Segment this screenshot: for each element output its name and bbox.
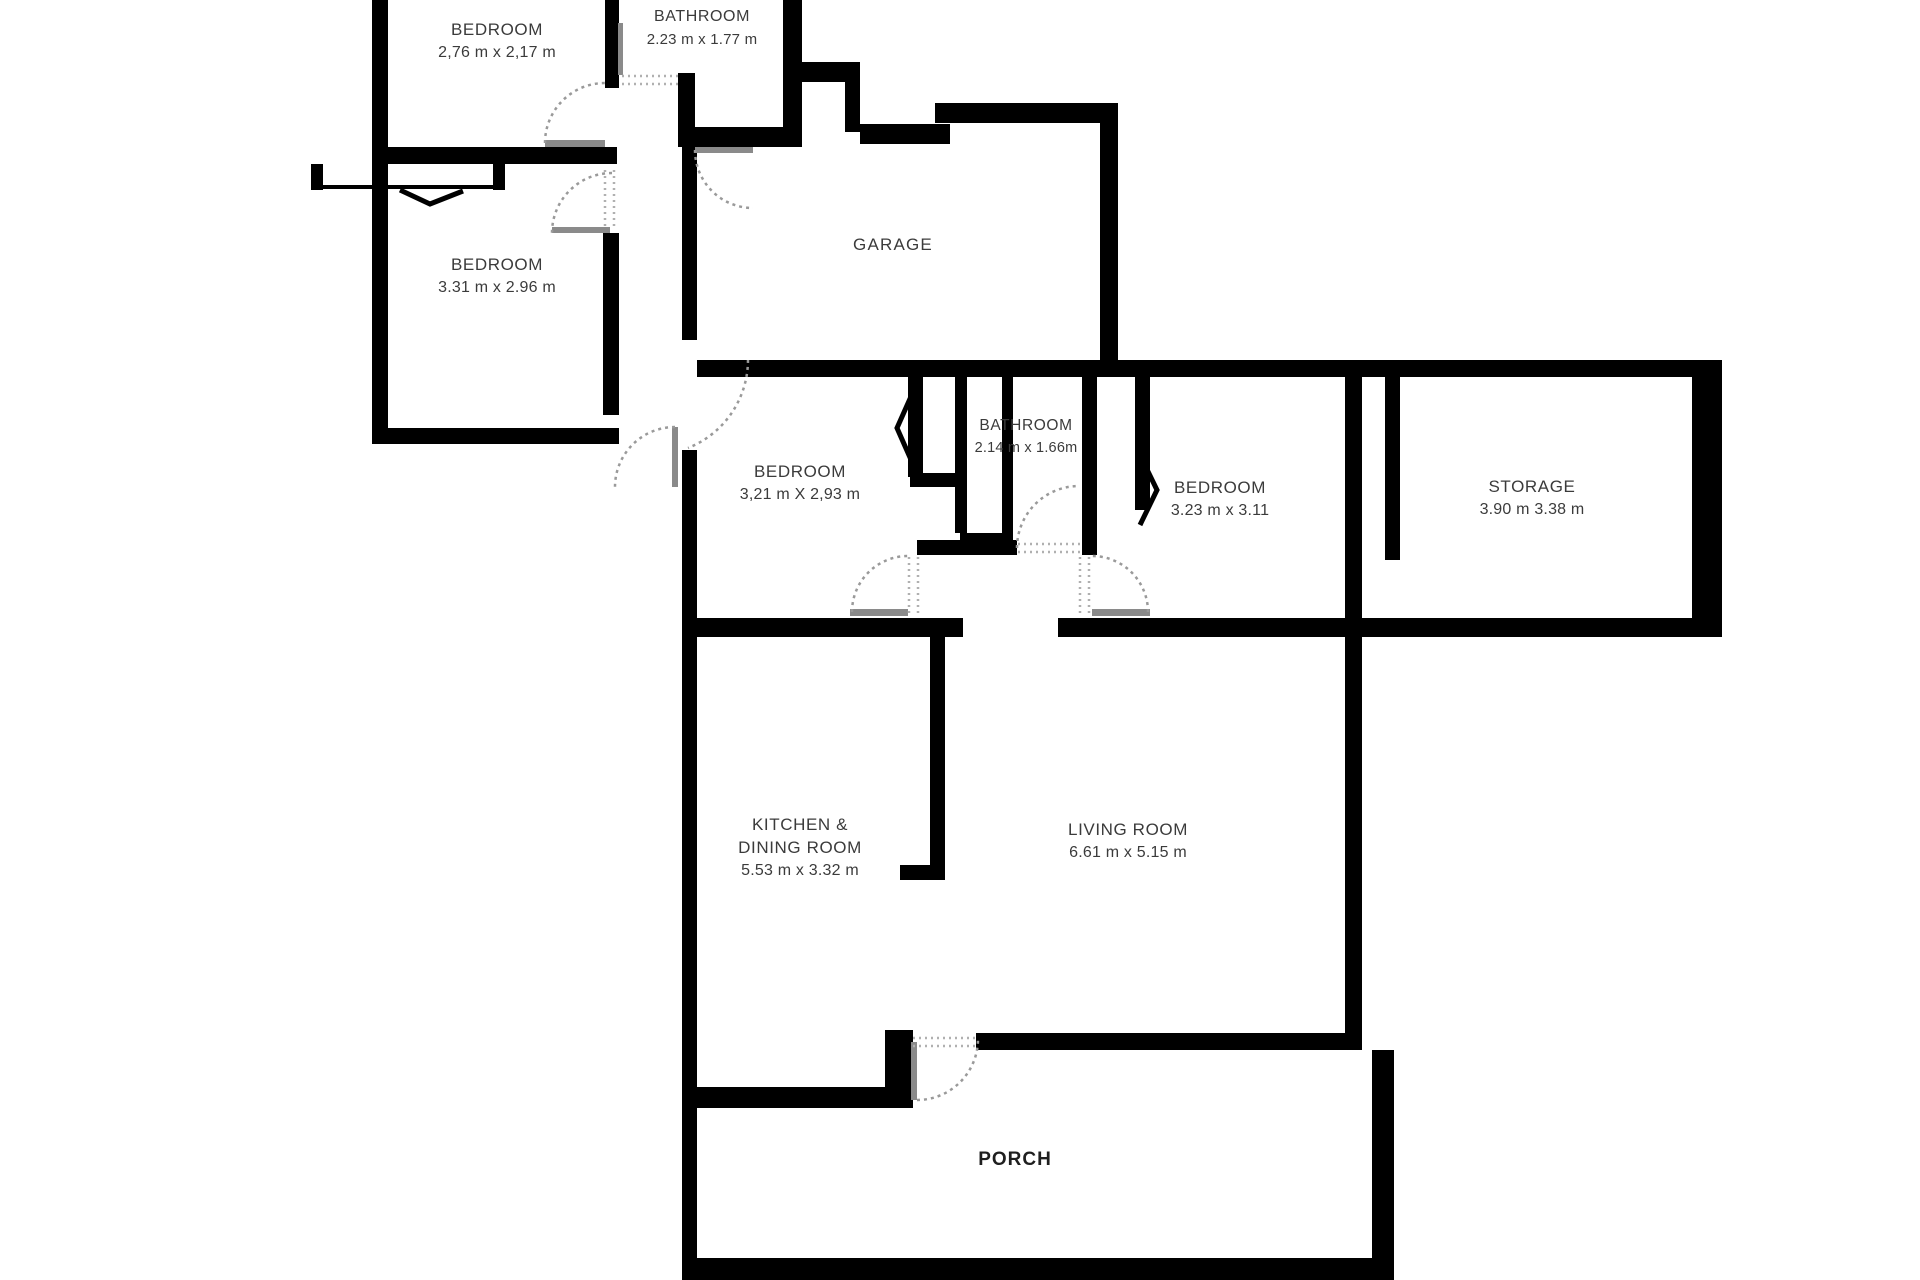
room-dims: 3,21 m X 2,93 m xyxy=(740,483,860,506)
door-leaf xyxy=(672,427,678,487)
door-leaf xyxy=(1092,609,1150,616)
room-label-bathroom-2: BATHROOM 2.14 m x 1.66m xyxy=(975,414,1078,460)
room-name: PORCH xyxy=(978,1148,1052,1171)
closet-door-chevron xyxy=(400,190,463,204)
wall xyxy=(935,103,1113,123)
door-thresholds xyxy=(605,76,1089,1046)
wall xyxy=(683,1087,913,1108)
wall xyxy=(1058,618,1708,637)
room-label-kitchen: KITCHEN & DINING ROOM 5.53 m x 3.32 m xyxy=(738,813,862,882)
room-name: GARAGE xyxy=(853,233,933,256)
wall xyxy=(1100,103,1118,377)
wall xyxy=(860,124,950,144)
closet-doors xyxy=(311,187,1157,525)
room-dims: 3.90 m 3.38 m xyxy=(1480,498,1585,521)
room-name: LIVING ROOM xyxy=(1068,818,1188,841)
room-label-bedroom-3: BEDROOM 3,21 m X 2,93 m xyxy=(740,460,860,506)
door-swing-arcs xyxy=(545,83,1148,1100)
room-name: KITCHEN & xyxy=(738,813,862,836)
door-arc xyxy=(1017,486,1079,548)
wall xyxy=(697,618,963,637)
wall xyxy=(976,1033,1356,1050)
wall xyxy=(1082,377,1097,555)
wall xyxy=(900,865,945,880)
room-name: BATHROOM xyxy=(647,5,758,28)
wall xyxy=(1385,375,1400,560)
door-arc xyxy=(615,427,675,487)
room-dims: 6.61 m x 5.15 m xyxy=(1068,841,1188,864)
room-name: STORAGE xyxy=(1480,475,1585,498)
door-arc xyxy=(545,83,605,143)
door-arc xyxy=(695,150,753,208)
room-name: BEDROOM xyxy=(740,460,860,483)
wall xyxy=(697,360,1722,377)
wall xyxy=(605,0,619,88)
wall xyxy=(783,0,802,130)
room-name: BEDROOM xyxy=(438,253,556,276)
wall xyxy=(372,428,619,444)
wall xyxy=(372,147,617,164)
room-dims: 2.14 m x 1.66m xyxy=(975,437,1078,460)
wall xyxy=(1345,375,1362,1050)
door-leaf xyxy=(911,1042,917,1100)
room-dims: 2,76 m x 2,17 m xyxy=(438,41,556,64)
walls xyxy=(311,0,1722,1280)
room-label-bedroom-2: BEDROOM 3.31 m x 2.96 m xyxy=(438,253,556,299)
door-leaf xyxy=(695,147,753,153)
wall xyxy=(845,82,860,132)
door-arc xyxy=(1092,556,1148,612)
door-arc xyxy=(852,556,908,612)
wall xyxy=(603,233,619,415)
wall xyxy=(1372,1050,1394,1280)
wall xyxy=(955,377,967,533)
room-dims: 5.53 m x 3.32 m xyxy=(738,859,862,882)
room-label-porch: PORCH xyxy=(978,1148,1052,1171)
room-name: BATHROOM xyxy=(975,414,1078,437)
wall xyxy=(1692,375,1722,637)
room-dims: 3.31 m x 2.96 m xyxy=(438,276,556,299)
wall xyxy=(930,637,945,880)
room-name: BEDROOM xyxy=(438,18,556,41)
room-dims: 3.23 m x 3.11 xyxy=(1171,499,1269,522)
room-label-storage: STORAGE 3.90 m 3.38 m xyxy=(1480,475,1585,521)
door-arc xyxy=(552,173,612,233)
room-name: BEDROOM xyxy=(1171,476,1269,499)
wall xyxy=(682,147,697,340)
floor-plan: BEDROOM 2,76 m x 2,17 m BATHROOM 2.23 m … xyxy=(0,0,1920,1280)
wall xyxy=(1135,377,1150,510)
door-leaf xyxy=(552,227,610,233)
door-arc xyxy=(917,1039,978,1100)
room-dims: 2.23 m x 1.77 m xyxy=(647,28,758,51)
room-label-bathroom-1: BATHROOM 2.23 m x 1.77 m xyxy=(647,5,758,51)
wall xyxy=(682,1258,1394,1280)
door-leaf xyxy=(618,23,623,75)
wall xyxy=(682,450,697,1280)
door-leaves xyxy=(545,23,1150,1100)
wall xyxy=(802,62,860,82)
room-label-bedroom-4: BEDROOM 3.23 m x 3.11 xyxy=(1171,476,1269,522)
wall xyxy=(372,0,388,444)
room-label-garage: GARAGE xyxy=(853,233,933,256)
wall xyxy=(885,1030,913,1108)
door-leaf xyxy=(545,140,605,147)
floor-plan-drawing xyxy=(0,0,1920,1280)
wall xyxy=(917,540,1017,555)
door-leaf xyxy=(850,609,908,616)
room-name: DINING ROOM xyxy=(738,836,862,859)
room-label-living-room: LIVING ROOM 6.61 m x 5.15 m xyxy=(1068,818,1188,864)
room-label-bedroom-1: BEDROOM 2,76 m x 2,17 m xyxy=(438,18,556,64)
wall xyxy=(678,73,695,147)
